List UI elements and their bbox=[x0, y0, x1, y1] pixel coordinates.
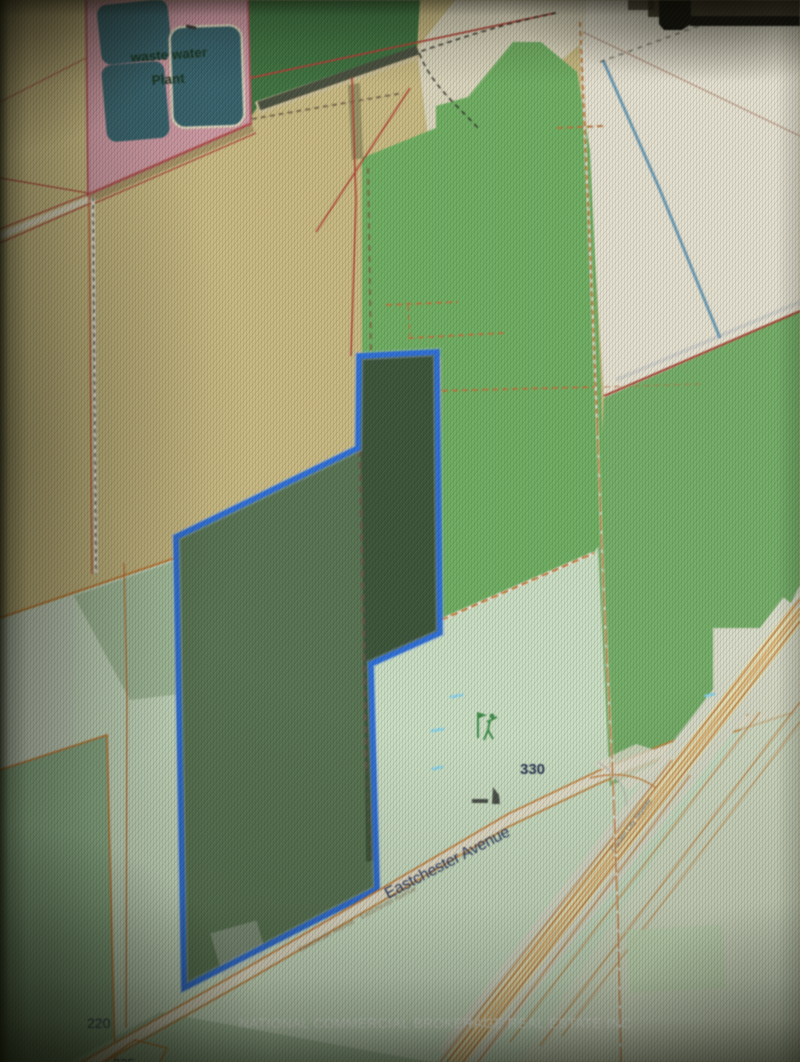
svg-text:220: 220 bbox=[87, 1015, 111, 1031]
svg-text:225: 225 bbox=[113, 1056, 135, 1062]
svg-text:330: 330 bbox=[520, 761, 545, 778]
svg-text:NATIONAL COMMERCIAL BROKERAGE: NATIONAL COMMERCIAL BROKERAGE REAL ESTAT… bbox=[239, 1016, 631, 1031]
svg-text:Plant: Plant bbox=[151, 71, 185, 88]
